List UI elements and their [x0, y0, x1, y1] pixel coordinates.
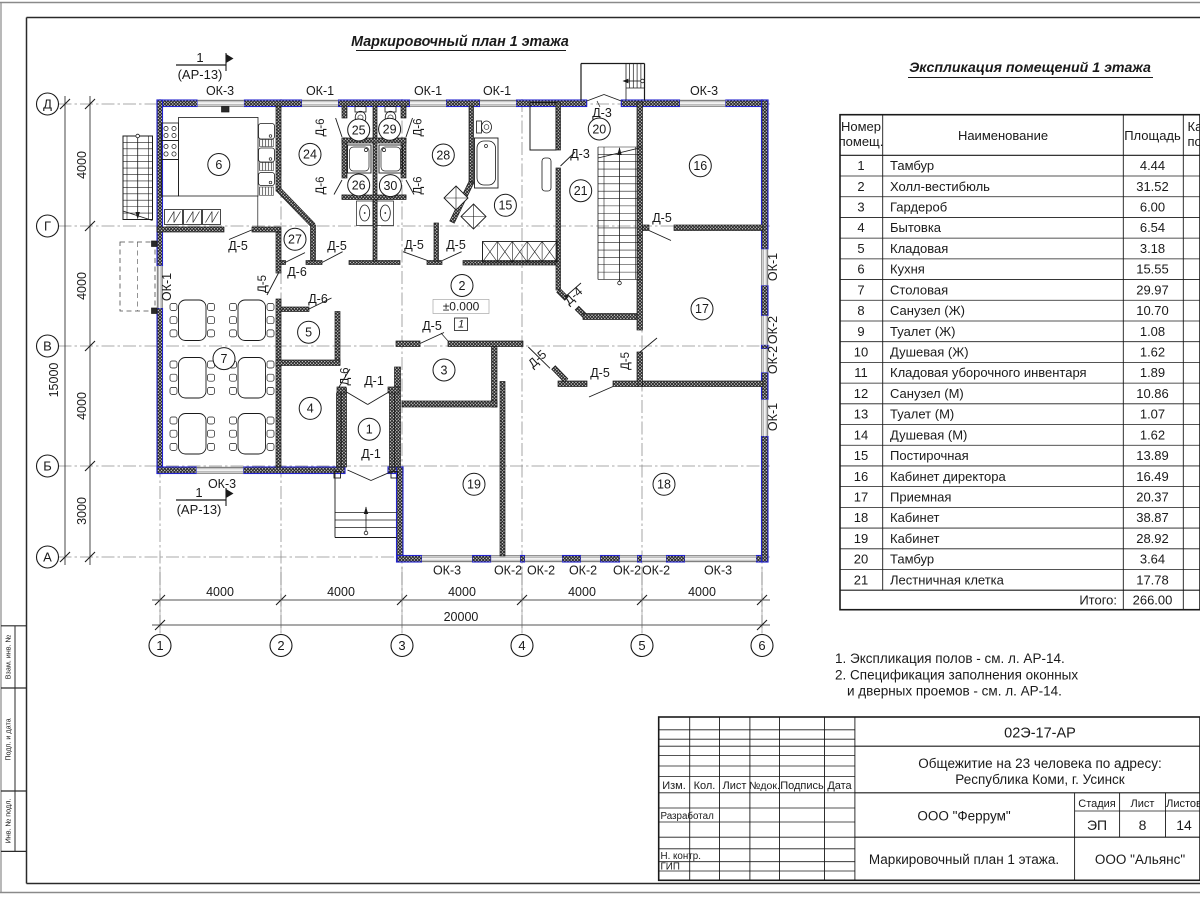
svg-text:20.37: 20.37 — [1136, 489, 1169, 504]
svg-text:Душевая (Ж): Душевая (Ж) — [890, 344, 969, 359]
svg-text:ОК-1: ОК-1 — [414, 84, 442, 98]
svg-text:4: 4 — [518, 638, 525, 653]
svg-text:24: 24 — [303, 148, 317, 162]
svg-text:4.44: 4.44 — [1140, 158, 1165, 173]
svg-text:1: 1 — [458, 319, 464, 331]
svg-text:ОК-1: ОК-1 — [483, 84, 511, 98]
svg-text:Туалет (М): Туалет (М) — [890, 407, 954, 422]
svg-text:Кухня: Кухня — [890, 262, 925, 277]
svg-text:13: 13 — [854, 407, 868, 422]
svg-text:Д-1: Д-1 — [364, 374, 384, 388]
svg-text:ОК-3: ОК-3 — [704, 564, 732, 578]
svg-text:ОК-3: ОК-3 — [208, 477, 236, 491]
svg-text:Тамбур: Тамбур — [890, 158, 934, 173]
svg-text:ОК-2: ОК-2 — [569, 564, 597, 578]
svg-text:Туалет (Ж): Туалет (Ж) — [890, 324, 955, 339]
svg-text:18: 18 — [657, 478, 671, 492]
svg-text:Инв. № подл.: Инв. № подл. — [4, 799, 13, 844]
svg-text:Д-5: Д-5 — [422, 319, 442, 333]
svg-text:Листов: Листов — [1166, 798, 1200, 810]
svg-text:4000: 4000 — [448, 585, 476, 599]
svg-text:Кол.: Кол. — [694, 780, 716, 792]
svg-text:7: 7 — [857, 282, 864, 297]
svg-text:19: 19 — [467, 478, 481, 492]
svg-text:6: 6 — [758, 638, 765, 653]
svg-text:Взам. инв. №: Взам. инв. № — [4, 634, 13, 679]
svg-text:2: 2 — [277, 638, 284, 653]
svg-text:1.07: 1.07 — [1140, 407, 1165, 422]
svg-text:1: 1 — [196, 50, 203, 65]
svg-text:по: по — [1188, 134, 1200, 149]
svg-text:12: 12 — [854, 386, 868, 401]
svg-text:Тамбур: Тамбур — [890, 552, 934, 567]
svg-text:Д-6: Д-6 — [315, 118, 327, 136]
svg-text:17: 17 — [854, 489, 868, 504]
svg-text:28.92: 28.92 — [1136, 531, 1169, 546]
svg-text:Кабинет директора: Кабинет директора — [890, 469, 1006, 484]
svg-text:3.64: 3.64 — [1140, 552, 1165, 567]
svg-text:Д-6: Д-6 — [413, 176, 425, 194]
svg-text:Д-6: Д-6 — [413, 118, 425, 136]
svg-text:ОК-2: ОК-2 — [766, 346, 780, 374]
svg-text:1.08: 1.08 — [1140, 324, 1165, 339]
svg-text:Гардероб: Гардероб — [890, 200, 947, 215]
svg-text:3: 3 — [441, 363, 448, 377]
svg-text:4: 4 — [857, 220, 864, 235]
svg-text:Д-1: Д-1 — [361, 447, 381, 461]
svg-text:10: 10 — [854, 344, 868, 359]
svg-text:и дверных проемов - см. л. АР-: и дверных проемов - см. л. АР-14. — [847, 684, 1062, 699]
svg-text:В: В — [43, 339, 52, 354]
svg-text:15: 15 — [498, 199, 512, 213]
svg-text:Приемная: Приемная — [890, 489, 951, 504]
svg-text:Общежитие на 23 человека по ад: Общежитие на 23 человека по адресу: — [918, 756, 1161, 771]
svg-text:6: 6 — [215, 158, 222, 172]
svg-text:21: 21 — [854, 572, 868, 587]
svg-text:Д-6: Д-6 — [287, 265, 307, 279]
svg-text:16: 16 — [693, 159, 707, 173]
svg-text:ОК-1: ОК-1 — [160, 273, 174, 301]
svg-text:ОК-3: ОК-3 — [206, 84, 234, 98]
svg-text:Кабинет: Кабинет — [890, 531, 939, 546]
svg-text:ОК-1: ОК-1 — [766, 253, 780, 281]
svg-text:Маркировочный план 1 этажа: Маркировочный план 1 этажа — [351, 34, 569, 50]
svg-text:Санузел (Ж): Санузел (Ж) — [890, 303, 965, 318]
svg-text:5: 5 — [305, 326, 312, 340]
svg-text:Душевая (М): Душевая (М) — [890, 427, 967, 442]
svg-text:6.54: 6.54 — [1140, 220, 1165, 235]
svg-text:4000: 4000 — [75, 151, 89, 179]
svg-text:Д-6: Д-6 — [340, 367, 352, 385]
svg-text:Разработал: Разработал — [661, 811, 715, 822]
svg-text:Ка: Ка — [1188, 119, 1200, 134]
svg-text:8: 8 — [857, 303, 864, 318]
svg-text:11: 11 — [854, 365, 868, 380]
svg-text:14: 14 — [1176, 817, 1192, 833]
svg-text:Постирочная: Постирочная — [890, 448, 969, 463]
svg-text:Подпись: Подпись — [780, 780, 824, 792]
svg-text:266.00: 266.00 — [1133, 593, 1173, 608]
svg-text:Итого:: Итого: — [1079, 593, 1117, 608]
svg-text:Д-5: Д-5 — [620, 352, 632, 370]
svg-text:5: 5 — [857, 241, 864, 256]
svg-text:Стадия: Стадия — [1078, 798, 1116, 810]
svg-text:20000: 20000 — [444, 610, 479, 624]
svg-text:20: 20 — [592, 122, 606, 136]
svg-text:Лист: Лист — [1131, 798, 1155, 810]
svg-text:4000: 4000 — [75, 272, 89, 300]
svg-text:18: 18 — [854, 510, 868, 525]
svg-text:ОК-2: ОК-2 — [527, 564, 555, 578]
svg-text:6: 6 — [857, 262, 864, 277]
svg-text:ОК-1: ОК-1 — [766, 403, 780, 431]
svg-text:9: 9 — [857, 324, 864, 339]
svg-text:14: 14 — [854, 427, 868, 442]
svg-text:Лестничная клетка: Лестничная клетка — [890, 572, 1005, 587]
svg-text:помещ.: помещ. — [839, 134, 884, 149]
svg-text:4000: 4000 — [206, 585, 234, 599]
svg-text:Санузел (М): Санузел (М) — [890, 386, 964, 401]
svg-text:Наименование: Наименование — [958, 128, 1048, 143]
svg-text:Д-5: Д-5 — [446, 238, 466, 252]
svg-text:2: 2 — [459, 279, 466, 293]
svg-text:26: 26 — [352, 178, 366, 192]
svg-text:Д-5: Д-5 — [590, 366, 610, 380]
svg-text:10.70: 10.70 — [1136, 303, 1169, 318]
svg-text:Экспликация помещений 1 этажа: Экспликация помещений 1 этажа — [909, 60, 1151, 76]
svg-text:29: 29 — [383, 123, 397, 137]
svg-text:02Э-17-АР: 02Э-17-АР — [1004, 726, 1076, 742]
svg-text:(АР-13): (АР-13) — [177, 502, 222, 517]
svg-text:27: 27 — [288, 233, 302, 247]
svg-text:1: 1 — [366, 423, 373, 437]
svg-text:Республика Коми, г. Усинск: Республика Коми, г. Усинск — [955, 772, 1125, 787]
svg-text:Б: Б — [43, 459, 52, 474]
svg-text:Д-6: Д-6 — [308, 292, 328, 306]
svg-text:21: 21 — [574, 184, 588, 198]
svg-text:ГИП: ГИП — [661, 862, 680, 873]
svg-text:Маркировочный план 1 этажа.: Маркировочный план 1 этажа. — [869, 852, 1059, 867]
svg-text:Д-5: Д-5 — [257, 275, 269, 293]
svg-text:Д: Д — [43, 97, 52, 112]
svg-text:38.87: 38.87 — [1136, 510, 1169, 525]
svg-text:Н. контр.: Н. контр. — [661, 851, 701, 862]
svg-text:3: 3 — [398, 638, 405, 653]
svg-text:3.18: 3.18 — [1140, 241, 1165, 256]
svg-text:А: А — [43, 550, 52, 565]
svg-text:ООО "Альянс": ООО "Альянс" — [1095, 852, 1185, 867]
svg-text:15.55: 15.55 — [1136, 262, 1169, 277]
svg-text:1.62: 1.62 — [1140, 427, 1165, 442]
svg-text:16: 16 — [854, 469, 868, 484]
svg-text:Номер: Номер — [841, 119, 881, 134]
svg-text:17: 17 — [695, 302, 709, 316]
svg-text:4: 4 — [307, 402, 314, 416]
svg-text:4000: 4000 — [327, 585, 355, 599]
svg-text:1.62: 1.62 — [1140, 344, 1165, 359]
svg-text:№док.: №док. — [749, 780, 780, 792]
svg-text:Д-3: Д-3 — [570, 147, 590, 161]
svg-text:16.49: 16.49 — [1136, 469, 1169, 484]
svg-text:Д-5: Д-5 — [404, 238, 424, 252]
svg-text:Бытовка: Бытовка — [890, 220, 942, 235]
svg-text:2. Спецификация заполнения око: 2. Спецификация заполнения оконных — [835, 668, 1078, 683]
svg-text:19: 19 — [854, 531, 868, 546]
svg-text:1. Экспликация полов - см. л.: 1. Экспликация полов - см. л. АР-14. — [835, 651, 1065, 666]
svg-text:Площадь: Площадь — [1124, 128, 1181, 143]
svg-text:15: 15 — [854, 448, 868, 463]
svg-text:8: 8 — [1139, 817, 1147, 833]
svg-text:31.52: 31.52 — [1136, 179, 1169, 194]
svg-text:ОК-3: ОК-3 — [690, 84, 718, 98]
svg-text:30: 30 — [383, 179, 397, 193]
svg-text:ОК-2: ОК-2 — [613, 564, 641, 578]
svg-text:17.78: 17.78 — [1136, 572, 1169, 587]
svg-text:ОК-1: ОК-1 — [306, 84, 334, 98]
svg-text:Кладовая: Кладовая — [890, 241, 948, 256]
svg-text:Г: Г — [44, 219, 51, 234]
svg-text:Дата: Дата — [827, 780, 852, 792]
svg-text:29.97: 29.97 — [1136, 282, 1169, 297]
svg-text:2: 2 — [857, 179, 864, 194]
svg-text:4000: 4000 — [688, 585, 716, 599]
svg-text:4000: 4000 — [75, 392, 89, 420]
svg-text:13.89: 13.89 — [1136, 448, 1169, 463]
svg-text:±0.000: ±0.000 — [443, 300, 480, 314]
svg-text:1: 1 — [857, 158, 864, 173]
svg-text:Подп. и дата: Подп. и дата — [4, 718, 13, 760]
svg-text:1.89: 1.89 — [1140, 365, 1165, 380]
svg-text:6.00: 6.00 — [1140, 200, 1165, 215]
svg-text:Изм.: Изм. — [662, 780, 686, 792]
svg-text:20: 20 — [854, 552, 868, 567]
svg-text:1: 1 — [195, 485, 202, 500]
svg-text:Д-5: Д-5 — [228, 239, 248, 253]
svg-text:ЭП: ЭП — [1087, 817, 1107, 833]
svg-text:10.86: 10.86 — [1136, 386, 1169, 401]
svg-text:15000: 15000 — [47, 363, 61, 398]
svg-text:Д-5: Д-5 — [327, 239, 347, 253]
svg-text:4000: 4000 — [568, 585, 596, 599]
svg-text:ООО "Феррум": ООО "Феррум" — [917, 809, 1011, 824]
svg-text:Столовая: Столовая — [890, 282, 948, 297]
svg-text:Д-5: Д-5 — [652, 211, 672, 225]
svg-text:Кабинет: Кабинет — [890, 510, 939, 525]
svg-text:3: 3 — [857, 200, 864, 215]
svg-text:3000: 3000 — [75, 497, 89, 525]
svg-text:1: 1 — [156, 638, 163, 653]
svg-text:7: 7 — [221, 352, 228, 366]
svg-text:28: 28 — [436, 148, 450, 162]
svg-text:(АР-13): (АР-13) — [178, 67, 223, 82]
svg-text:ОК-2: ОК-2 — [766, 316, 780, 344]
svg-text:ОК-2: ОК-2 — [494, 564, 522, 578]
svg-text:Холл-вестибюль: Холл-вестибюль — [890, 179, 990, 194]
svg-text:5: 5 — [638, 638, 645, 653]
svg-text:ОК-2: ОК-2 — [642, 564, 670, 578]
svg-text:25: 25 — [352, 123, 366, 137]
svg-text:Кладовая уборочного инвентаря: Кладовая уборочного инвентаря — [890, 365, 1087, 380]
svg-text:ОК-3: ОК-3 — [433, 564, 461, 578]
svg-text:Д-6: Д-6 — [315, 176, 327, 194]
svg-text:Лист: Лист — [723, 780, 747, 792]
